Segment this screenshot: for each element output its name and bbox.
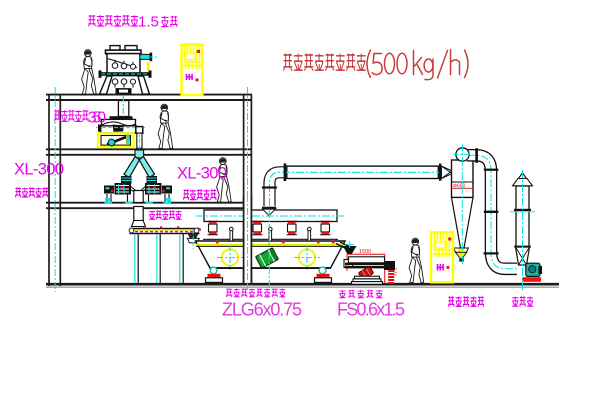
svg-text:1500: 1500 (359, 249, 371, 255)
svg-text:350: 350 (88, 110, 106, 127)
svg-text:1.5: 1.5 (138, 14, 159, 31)
svg-text:ZLG6x0.75: ZLG6x0.75 (222, 300, 302, 320)
svg-text:XL-300: XL-300 (177, 165, 227, 183)
svg-text:FS0.6x1.5: FS0.6x1.5 (337, 300, 405, 320)
svg-text:XL-300: XL-300 (14, 161, 64, 179)
